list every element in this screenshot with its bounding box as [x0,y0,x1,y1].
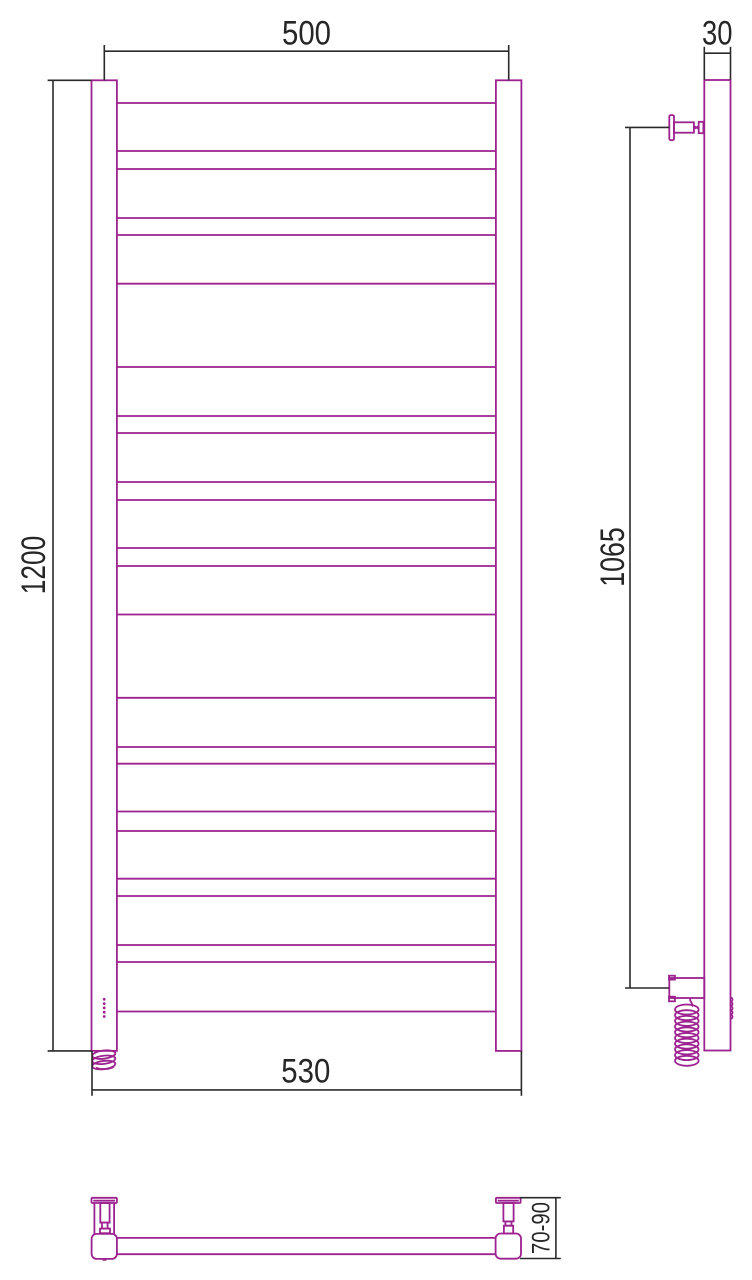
svg-text:500: 500 [282,14,331,52]
svg-text:30: 30 [702,15,733,53]
svg-text:70-90: 70-90 [528,1202,556,1254]
svg-text:530: 530 [281,1053,330,1091]
svg-text:1200: 1200 [15,536,53,595]
svg-text:1065: 1065 [594,527,632,587]
